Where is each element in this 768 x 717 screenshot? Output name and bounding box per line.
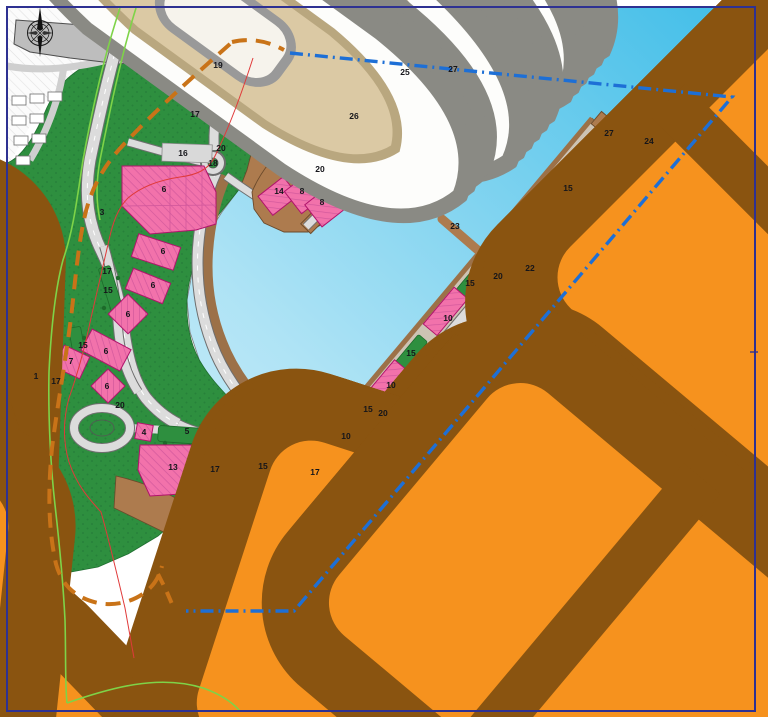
marina-plan-map: H: [0, 0, 768, 717]
map-label: 17: [51, 376, 61, 386]
loop-green-island: [90, 420, 114, 436]
map-label: 6: [105, 381, 110, 391]
marina-plan-page: H: [0, 0, 768, 717]
map-label: 3: [100, 207, 105, 217]
map-label: 25: [400, 67, 410, 77]
map-label: 13: [168, 462, 178, 472]
map-label: 15: [78, 340, 88, 350]
map-label: 20: [493, 271, 503, 281]
map-label: 15: [103, 285, 113, 295]
map-label: 15: [258, 461, 268, 471]
map-label: 17: [310, 467, 320, 477]
map-label: 6: [161, 246, 166, 256]
map-label: 17: [190, 109, 200, 119]
map-label: 23: [450, 221, 460, 231]
map-label: 5: [185, 426, 190, 436]
map-label: 17: [102, 266, 112, 276]
map-label: 22: [525, 263, 535, 273]
map-label: 6: [151, 280, 156, 290]
map-label: 18: [208, 158, 218, 168]
map-label: 15: [363, 404, 373, 414]
map-label: 6: [126, 309, 131, 319]
map-label: 17: [210, 464, 220, 474]
map-label: 10: [443, 313, 453, 323]
map-label: 19: [213, 60, 223, 70]
map-label: 20: [378, 408, 388, 418]
map-label: 15: [563, 183, 573, 193]
map-label: 24: [644, 136, 654, 146]
map-label: 10: [386, 380, 396, 390]
map-label: 8: [320, 197, 325, 207]
map-label: 15: [465, 278, 475, 288]
map-label: 20: [115, 400, 125, 410]
map-label: 1: [34, 371, 39, 381]
map-label: 10: [341, 431, 351, 441]
map-label: 20: [315, 164, 325, 174]
map-label: 27: [448, 64, 458, 74]
map-label: 27: [604, 128, 614, 138]
map-label: 15: [406, 348, 416, 358]
map-label: 6: [162, 184, 167, 194]
map-label: 20: [216, 143, 226, 153]
map-label: 4: [142, 427, 147, 437]
map-label: 14: [274, 186, 284, 196]
map-label: 8: [300, 186, 305, 196]
map-label: 6: [104, 346, 109, 356]
map-label: 16: [178, 148, 188, 158]
map-label: 7: [69, 356, 74, 366]
map-label: 26: [349, 111, 359, 121]
